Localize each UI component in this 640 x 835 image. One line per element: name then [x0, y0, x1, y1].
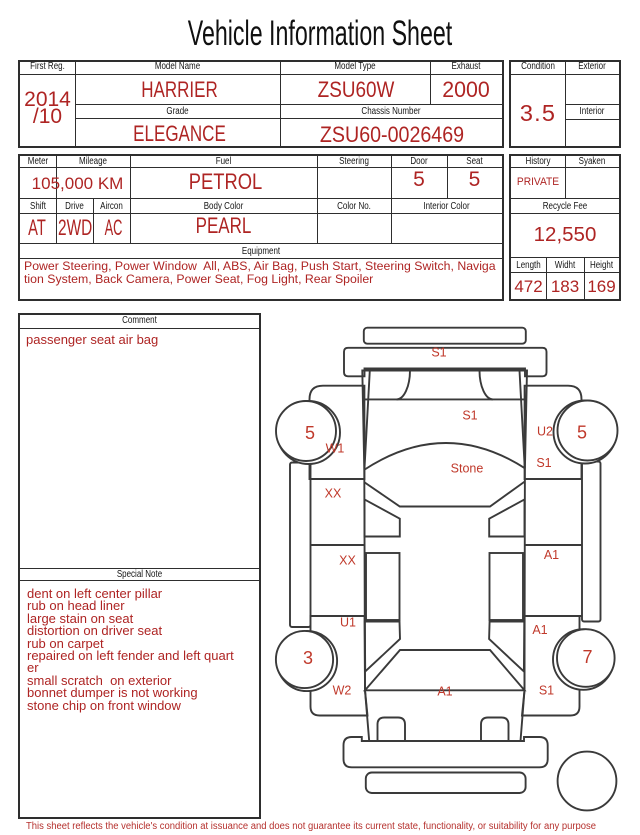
- svg-text:U1: U1: [340, 616, 356, 630]
- svg-text:S1: S1: [462, 409, 477, 423]
- svg-text:S1: S1: [536, 456, 551, 470]
- svg-text:W2: W2: [333, 684, 352, 698]
- svg-text:Stone: Stone: [451, 462, 484, 476]
- svg-text:7: 7: [582, 647, 592, 667]
- svg-text:XX: XX: [339, 554, 356, 568]
- svg-text:W1: W1: [326, 442, 345, 456]
- svg-text:A1: A1: [437, 685, 452, 699]
- svg-text:5: 5: [305, 423, 315, 443]
- svg-text:5: 5: [577, 423, 587, 443]
- svg-text:S1: S1: [539, 684, 554, 698]
- svg-text:S1: S1: [431, 346, 446, 360]
- svg-text:U2: U2: [537, 425, 553, 439]
- svg-text:3: 3: [303, 648, 313, 668]
- svg-text:XX: XX: [325, 487, 342, 501]
- svg-text:A1: A1: [544, 548, 559, 562]
- svg-text:A1: A1: [532, 623, 547, 637]
